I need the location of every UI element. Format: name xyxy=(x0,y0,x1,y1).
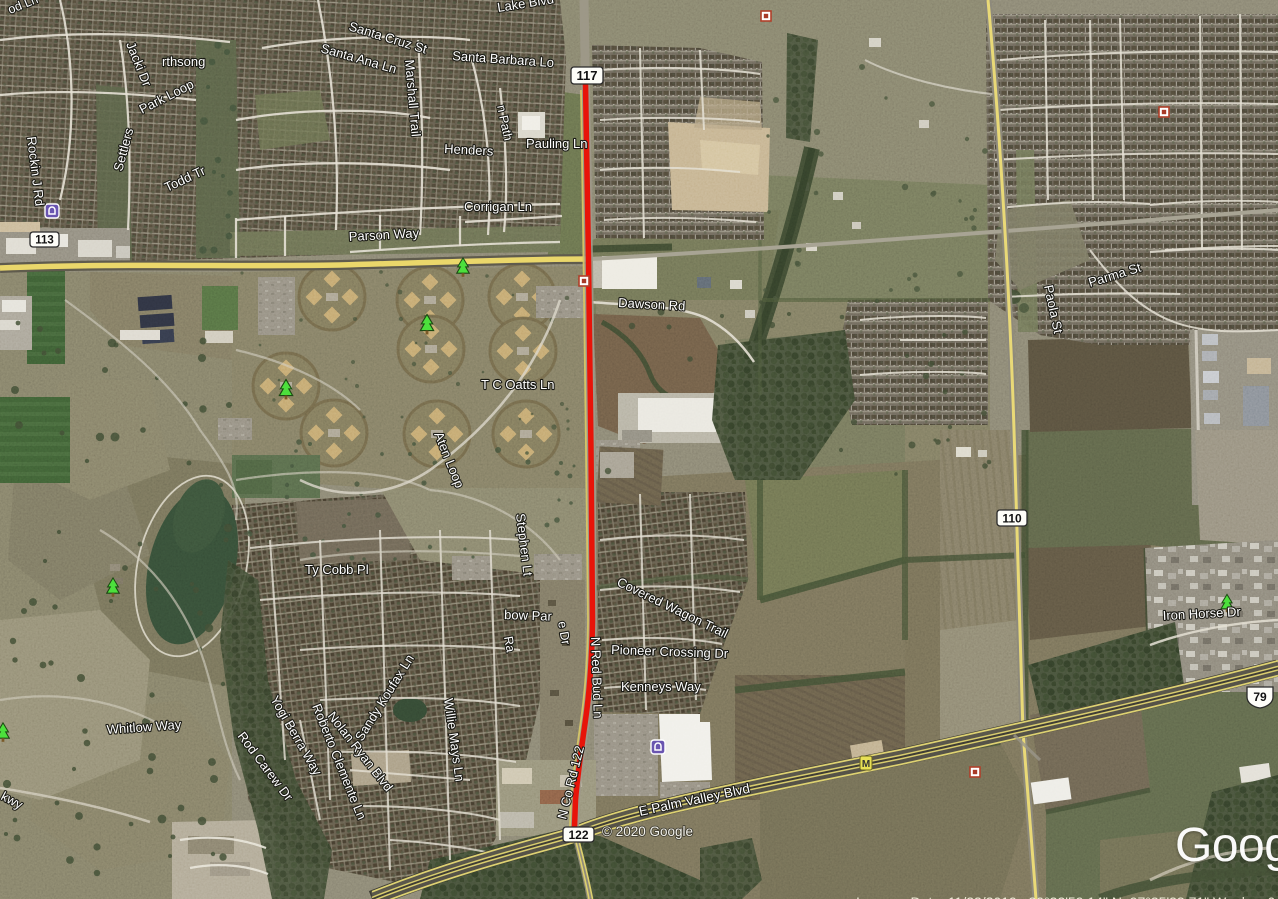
svg-text:113: 113 xyxy=(35,235,54,247)
svg-text:Corrigan Ln: Corrigan Ln xyxy=(464,199,532,214)
svg-text:Imagery Date: 11/23/2019 30°: Imagery Date: 11/23/2019 30°32'59.14" N … xyxy=(856,894,1278,899)
svg-text:79: 79 xyxy=(1253,690,1267,704)
svg-text:N Red Bud Ln: N Red Bud Ln xyxy=(588,637,606,719)
svg-text:rthsong: rthsong xyxy=(162,54,205,69)
svg-text:Google: Google xyxy=(1175,819,1278,872)
svg-text:Pauling Ln: Pauling Ln xyxy=(526,136,587,151)
svg-text:110: 110 xyxy=(1002,511,1022,525)
svg-text:122: 122 xyxy=(568,828,588,842)
svg-text:Henders: Henders xyxy=(444,141,494,159)
svg-text:M: M xyxy=(862,759,870,770)
svg-text:© 2020 Google: © 2020 Google xyxy=(602,824,693,839)
svg-text:Ty Cobb Pl: Ty Cobb Pl xyxy=(305,562,369,577)
svg-text:bow Par: bow Par xyxy=(504,607,553,624)
svg-text:Ra: Ra xyxy=(501,635,518,653)
svg-text:T C Oatts Ln: T C Oatts Ln xyxy=(481,377,554,392)
svg-text:117: 117 xyxy=(577,68,598,83)
svg-text:Kenneys Way: Kenneys Way xyxy=(621,679,701,694)
